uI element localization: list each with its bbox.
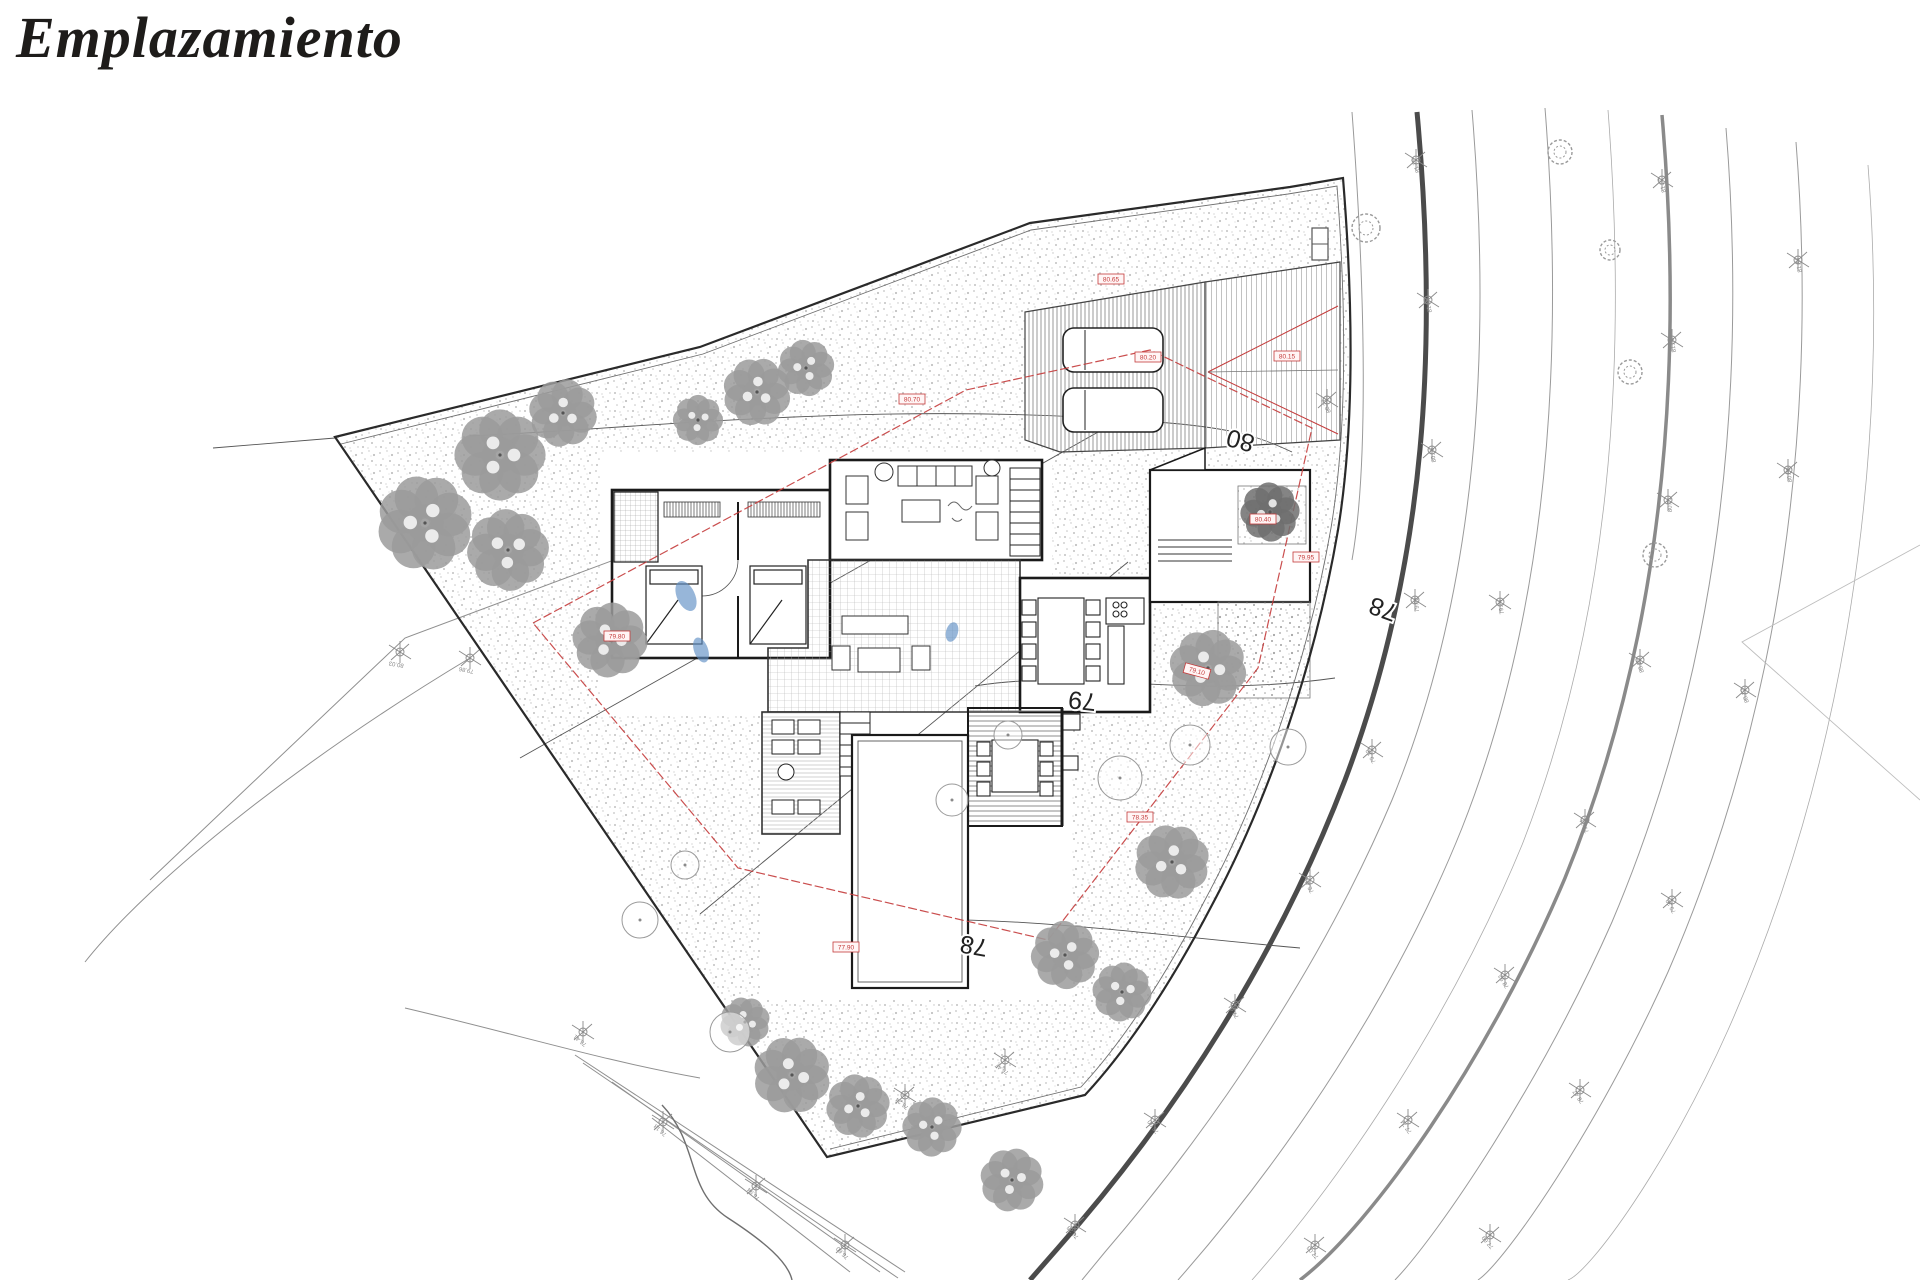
svg-text:79.95: 79.95 xyxy=(1298,554,1315,561)
tree-canopy xyxy=(902,1097,961,1156)
survey-marker: 79.86 xyxy=(458,647,481,674)
svg-text:80.65: 80.65 xyxy=(1103,276,1120,283)
survey-marker: 79.92 xyxy=(1404,589,1426,612)
red-elevation-tag: 79.80 xyxy=(604,631,630,641)
red-elevation-tag: 80.40 xyxy=(1250,514,1276,524)
tree-canopy xyxy=(1031,921,1099,989)
roadside-shrub xyxy=(1600,240,1620,260)
tree-canopy xyxy=(673,395,723,445)
svg-text:80.15: 80.15 xyxy=(1279,353,1296,360)
tree-canopy xyxy=(467,509,549,591)
bathroom xyxy=(614,492,658,562)
survey-marker: 80.83 xyxy=(1777,459,1799,483)
road-kerb-line xyxy=(1300,115,1670,1280)
survey-marker: 80.12 xyxy=(1734,679,1756,703)
roadside-shrub xyxy=(1352,214,1380,242)
contour-elevation-label: 78 xyxy=(958,929,990,961)
tree-outline xyxy=(622,902,658,938)
survey-marker: 80.03 xyxy=(388,641,411,668)
svg-text:81.44: 81.44 xyxy=(1795,256,1804,273)
wardrobe xyxy=(748,502,820,517)
tree-outline xyxy=(1098,756,1142,800)
bed xyxy=(750,566,806,644)
svg-text:79.74: 79.74 xyxy=(1497,598,1506,614)
tree-outline xyxy=(671,851,699,879)
roadside-shrub xyxy=(1618,360,1642,384)
contour-elevation-label: 79 xyxy=(1067,685,1098,716)
red-elevation-tag: 80.65 xyxy=(1098,274,1124,284)
red-elevation-tag: 80.70 xyxy=(899,394,925,404)
red-elevation-tag: 78.35 xyxy=(1127,812,1153,822)
red-elevation-tag: 79.95 xyxy=(1293,552,1319,562)
survey-marker: 77.03 xyxy=(1304,1234,1326,1260)
site-plan-sheet: 81.7681.1880.5679.9279.1278.4077.6176.90… xyxy=(0,0,1920,1280)
survey-marker: 79.30 xyxy=(1661,889,1683,914)
red-elevation-tag: 80.20 xyxy=(1135,352,1161,362)
svg-text:80.71: 80.71 xyxy=(1667,496,1674,512)
survey-marker: 81.30 xyxy=(1661,329,1683,353)
svg-text:80.40: 80.40 xyxy=(1255,516,1272,523)
wardrobe xyxy=(664,502,720,517)
parked-car xyxy=(1063,388,1163,432)
pool xyxy=(852,735,968,988)
tree-canopy xyxy=(981,1149,1044,1212)
roadside-shrub xyxy=(1548,140,1572,164)
svg-text:79.86: 79.86 xyxy=(458,665,475,674)
drawing-title: Emplazamiento xyxy=(16,4,403,71)
stairs xyxy=(1010,468,1040,556)
svg-text:79.92: 79.92 xyxy=(1414,596,1421,612)
survey-marker: 76.90 xyxy=(1144,1109,1166,1134)
svg-text:80.03: 80.03 xyxy=(388,659,404,668)
tree-outline xyxy=(1270,729,1306,765)
red-elevation-tag: 77.90 xyxy=(833,942,859,952)
svg-text:80.70: 80.70 xyxy=(904,396,921,403)
site-plan-drawing: 81.7681.1880.5679.9279.1278.4077.6176.90… xyxy=(0,0,1920,1280)
survey-marker: 81.44 xyxy=(1787,249,1809,273)
survey-marker: 80.56 xyxy=(1421,439,1443,463)
svg-text:80.56: 80.56 xyxy=(1429,446,1438,462)
svg-text:78.35: 78.35 xyxy=(1132,814,1149,821)
survey-marker: 76.41 xyxy=(572,1021,594,1047)
survey-marker: 79.12 xyxy=(1361,739,1383,764)
svg-text:80.20: 80.20 xyxy=(1140,354,1157,361)
survey-marker: 79.74 xyxy=(1489,591,1511,615)
svg-text:77.90: 77.90 xyxy=(838,944,855,951)
svg-text:79.80: 79.80 xyxy=(609,633,626,640)
survey-marker: 81.18 xyxy=(1417,289,1439,313)
survey-marker: 81.92 xyxy=(1651,169,1673,193)
tree-outline xyxy=(994,721,1022,749)
tree-canopy xyxy=(1240,482,1299,541)
tree-outline xyxy=(1170,725,1210,765)
tree-outline xyxy=(936,784,968,816)
tree-outline xyxy=(710,1012,750,1052)
survey-marker: 78.47 xyxy=(1569,1079,1591,1104)
survey-marker: 77.74 xyxy=(1397,1109,1419,1134)
svg-text:80.83: 80.83 xyxy=(1786,466,1794,482)
tree-canopy xyxy=(1093,963,1152,1022)
survey-marker: 77.69 xyxy=(1479,1224,1501,1250)
svg-text:81.30: 81.30 xyxy=(1669,336,1678,352)
red-elevation-tag: 80.15 xyxy=(1274,351,1300,361)
survey-marker: 79.31 xyxy=(1574,809,1596,834)
